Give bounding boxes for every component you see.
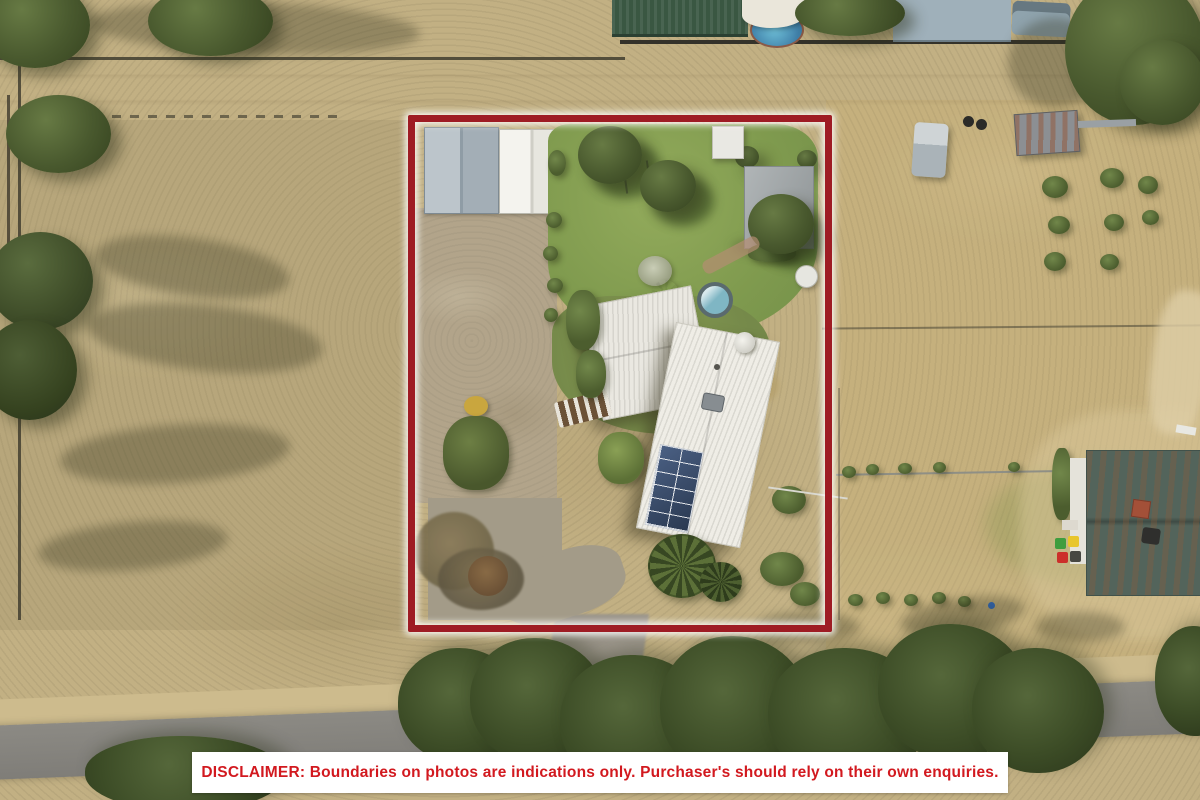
shrub — [904, 594, 918, 606]
shrub — [1100, 168, 1124, 188]
shrub — [1008, 462, 1020, 472]
fence-line — [838, 388, 840, 620]
hedge — [1052, 448, 1072, 520]
shrub — [848, 594, 863, 606]
aerial-photo: DISCLAIMER: Boundaries on photos are ind… — [0, 0, 1200, 800]
wheelie-bin-yellow — [1068, 536, 1079, 547]
shrub — [1100, 254, 1119, 270]
shrub — [876, 592, 890, 604]
tree — [6, 95, 111, 173]
tyres — [976, 119, 987, 130]
container-trailer — [1014, 110, 1081, 156]
roof-vent — [1141, 527, 1161, 545]
property-boundary — [408, 115, 832, 632]
neighbour-veranda — [1070, 458, 1087, 564]
metal-shed-roof — [893, 0, 1011, 42]
ute-truck — [911, 122, 949, 178]
shrub — [1104, 214, 1124, 231]
disclaimer-text: DISCLAIMER: Boundaries on photos are ind… — [201, 764, 998, 782]
neighbour-house-roof — [1086, 450, 1200, 596]
shrub — [1042, 176, 1068, 198]
shrub — [933, 462, 946, 473]
shrub — [1138, 176, 1158, 194]
shrub — [866, 464, 879, 475]
green-roof-building — [612, 0, 748, 37]
tree — [1120, 40, 1200, 125]
shrub — [1048, 216, 1070, 234]
fence-line — [0, 57, 625, 60]
disclaimer-banner: DISCLAIMER: Boundaries on photos are ind… — [192, 752, 1008, 793]
brick-chimney — [1131, 499, 1151, 519]
shrub — [898, 463, 912, 474]
shrub — [842, 466, 856, 478]
outdoor-table — [1062, 520, 1078, 530]
tyres — [963, 116, 974, 127]
tree-shadow — [1035, 612, 1125, 642]
wheelie-bin-red — [1057, 552, 1068, 563]
shrub — [1044, 252, 1066, 271]
wheelie-bin-green — [1055, 538, 1066, 549]
shrub — [1142, 210, 1159, 225]
wheelie-bin-dark — [1070, 551, 1081, 562]
